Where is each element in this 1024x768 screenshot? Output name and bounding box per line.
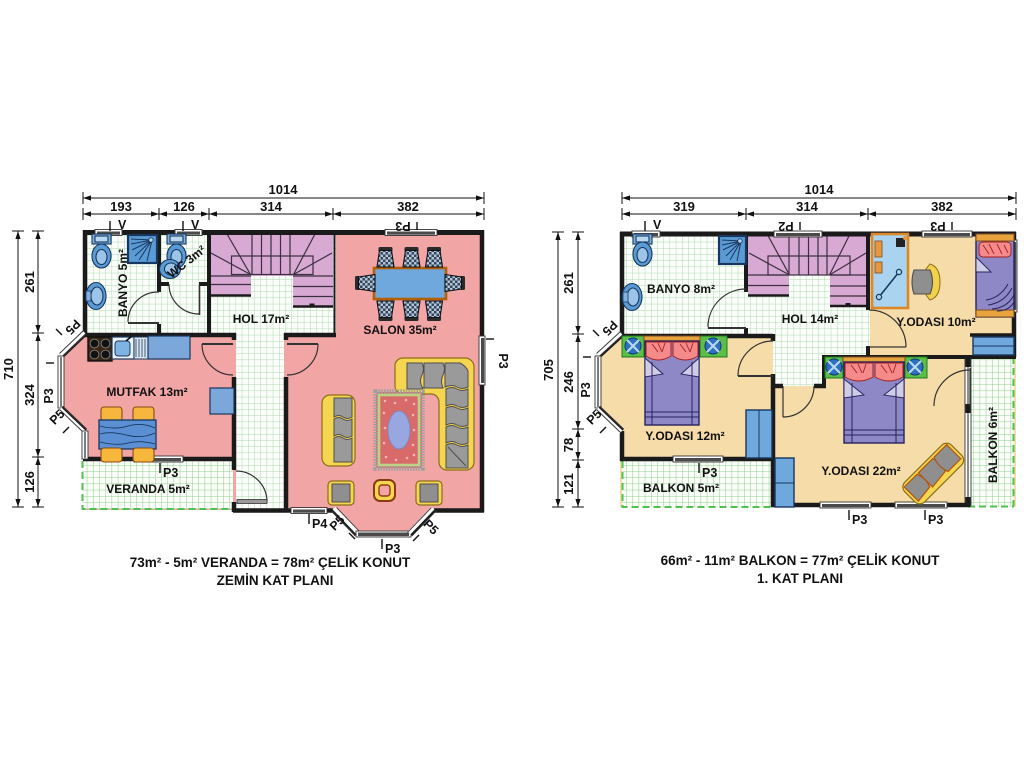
svg-text:1. KAT PLANI: 1. KAT PLANI (757, 571, 843, 586)
svg-text:BALKON 5m²: BALKON 5m² (643, 481, 719, 495)
svg-text:382: 382 (931, 199, 953, 214)
svg-text:BANYO 5m²: BANYO 5m² (116, 249, 130, 317)
svg-text:314: 314 (260, 199, 282, 214)
svg-text:193: 193 (110, 199, 132, 214)
svg-text:261: 261 (561, 272, 576, 294)
svg-text:VERANDA 5m²: VERANDA 5m² (106, 482, 190, 496)
svg-text:P3: P3 (163, 466, 178, 480)
svg-text:HOL 17m²: HOL 17m² (233, 312, 289, 326)
svg-text:P3: P3 (395, 219, 410, 233)
svg-text:319: 319 (673, 199, 695, 214)
svg-text:ZEMİN KAT PLANI: ZEMİN KAT PLANI (217, 573, 334, 588)
svg-text:126: 126 (22, 471, 37, 493)
svg-text:P3: P3 (702, 466, 717, 480)
svg-text:HOL 14m²: HOL 14m² (782, 312, 838, 326)
svg-text:P3: P3 (930, 219, 945, 233)
svg-text:P3: P3 (42, 388, 56, 403)
svg-text:Y.ODASI 12m²: Y.ODASI 12m² (645, 429, 724, 443)
svg-text:MUTFAK 13m²: MUTFAK 13m² (106, 385, 187, 399)
svg-text:P2: P2 (778, 219, 793, 233)
svg-text:126: 126 (173, 199, 195, 214)
svg-text:P3: P3 (579, 382, 593, 397)
svg-text:P3: P3 (496, 353, 510, 368)
svg-text:246: 246 (561, 371, 576, 393)
svg-text:1014: 1014 (805, 182, 835, 197)
svg-text:V: V (653, 218, 662, 232)
svg-text:SALON 35m²: SALON 35m² (363, 323, 436, 337)
svg-text:Y.ODASI 22m²: Y.ODASI 22m² (821, 464, 900, 478)
svg-text:Y.ODASI 10m²: Y.ODASI 10m² (896, 315, 975, 329)
svg-text:V: V (118, 218, 127, 232)
svg-text:261: 261 (22, 271, 37, 293)
svg-text:66m² - 11m² BALKON = 77m² ÇELİ: 66m² - 11m² BALKON = 77m² ÇELİK KONUT (661, 553, 940, 568)
svg-text:P3: P3 (852, 513, 867, 527)
svg-text:BANYO 8m²: BANYO 8m² (647, 282, 715, 296)
svg-text:P3: P3 (928, 513, 943, 527)
svg-text:73m² - 5m² VERANDA = 78m² ÇELİ: 73m² - 5m² VERANDA = 78m² ÇELİK KONUT (130, 555, 411, 570)
svg-text:324: 324 (22, 383, 37, 405)
svg-text:BALKON 6m²: BALKON 6m² (986, 407, 1000, 483)
svg-text:1014: 1014 (269, 182, 299, 197)
svg-text:705: 705 (541, 359, 556, 381)
svg-text:78: 78 (561, 438, 576, 452)
svg-text:710: 710 (1, 358, 16, 380)
svg-text:314: 314 (796, 199, 818, 214)
svg-text:121: 121 (561, 473, 576, 495)
svg-text:382: 382 (397, 199, 419, 214)
svg-text:V: V (191, 218, 200, 232)
svg-text:P3: P3 (385, 542, 400, 556)
svg-text:P4: P4 (312, 517, 327, 531)
